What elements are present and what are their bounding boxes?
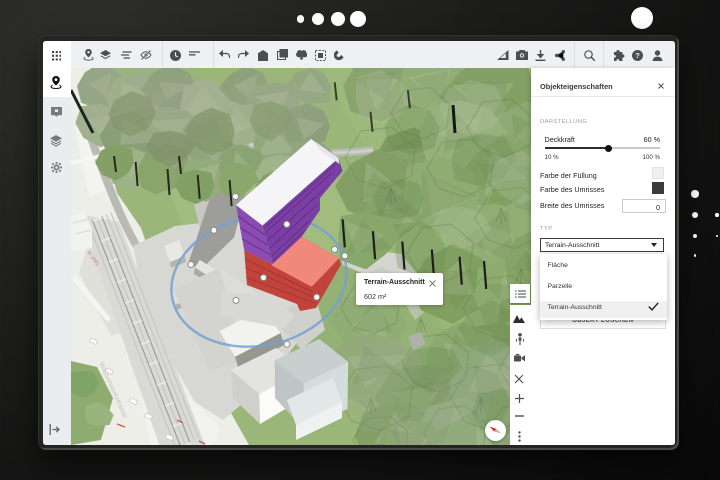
svg-text:?: ? [635,51,640,60]
